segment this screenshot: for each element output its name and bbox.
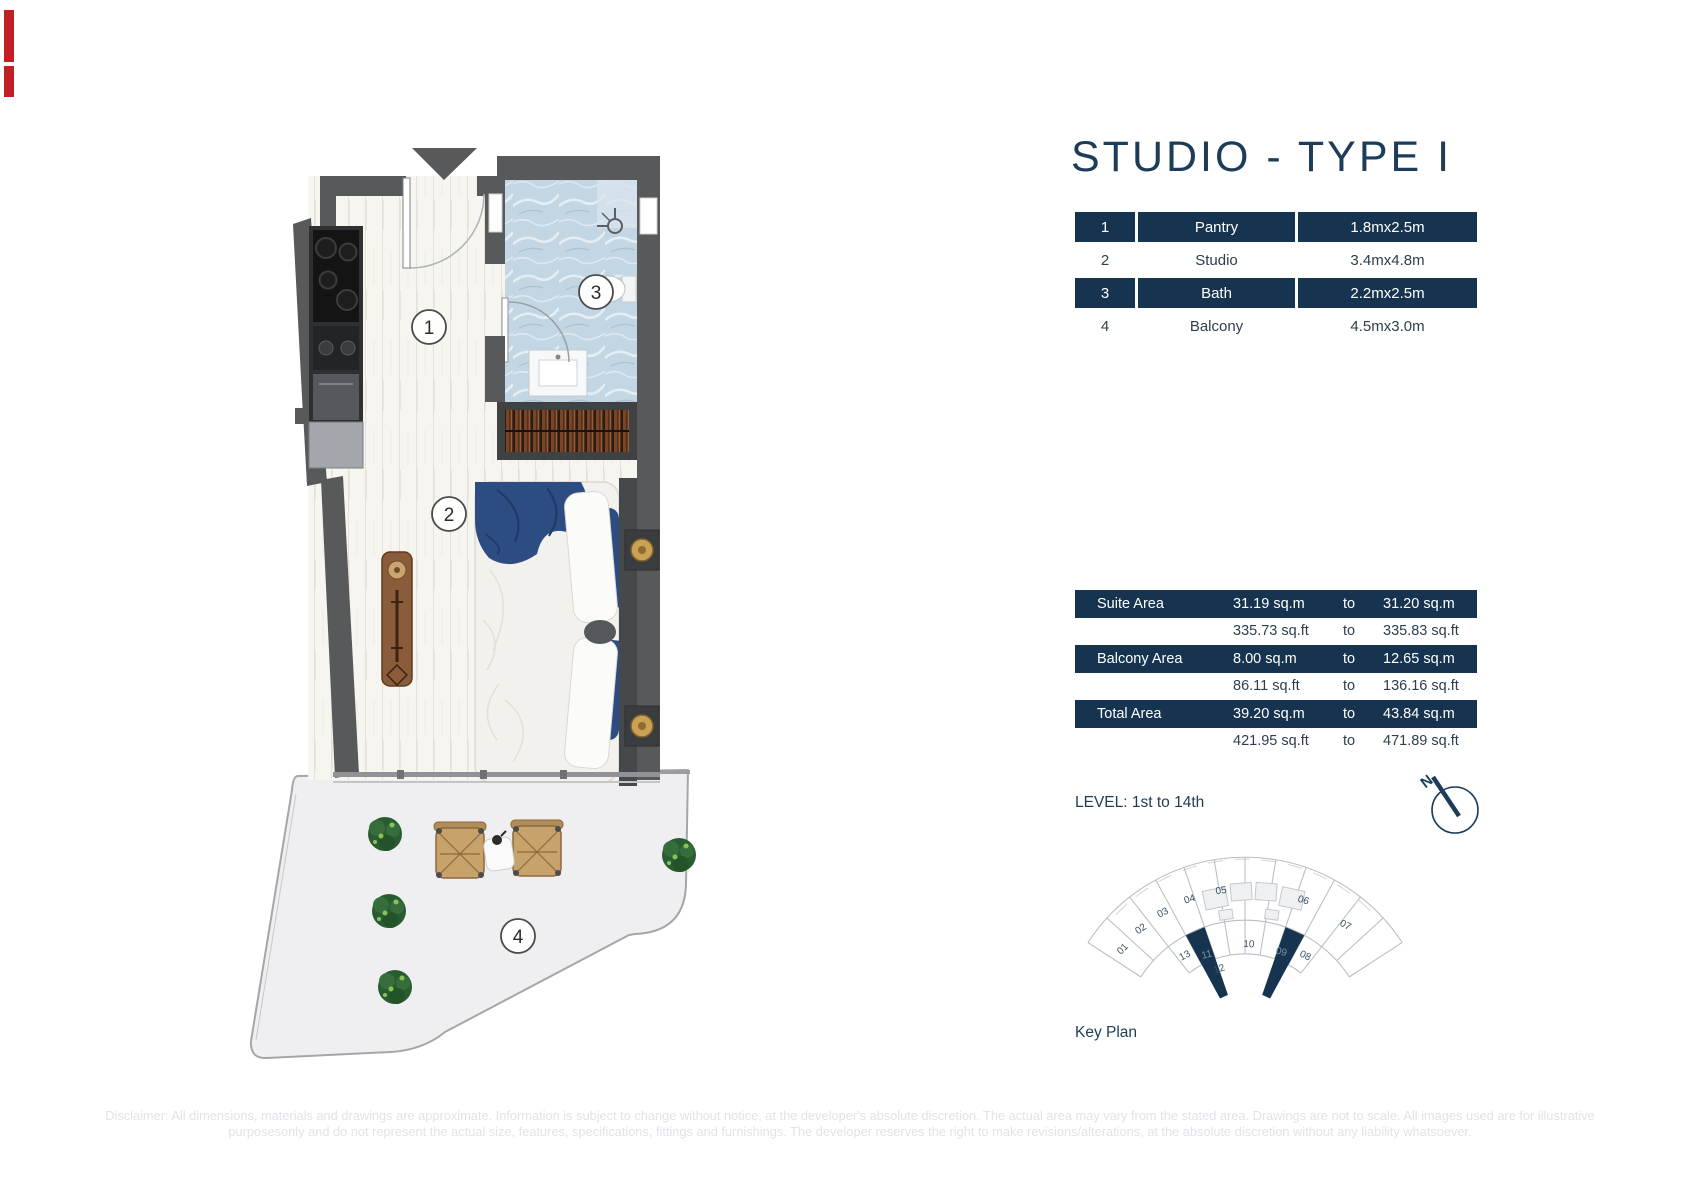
svg-text:01: 01	[1115, 941, 1131, 957]
area-value-max: 136.16 sq.ft	[1369, 678, 1477, 694]
area-summary-table: Suite Area 31.19 sq.m to 31.20 sq.m 335.…	[1075, 590, 1477, 755]
bathroom	[502, 176, 637, 402]
page-title: STUDIO - TYPE I	[1071, 133, 1452, 182]
wicker-chair	[434, 822, 486, 878]
svg-text:N: N	[1417, 772, 1436, 792]
red-edge-marker	[4, 10, 14, 62]
room-label-bath: 3	[579, 275, 613, 309]
room-label-studio: 2	[432, 497, 466, 531]
area-value-min: 39.20 sq.m	[1233, 706, 1329, 722]
window-slot	[640, 198, 657, 234]
area-value-min: 86.11 sq.ft	[1233, 678, 1329, 694]
table-row: Suite Area 31.19 sq.m to 31.20 sq.m	[1075, 590, 1477, 618]
table-row: Balcony Area 8.00 sq.m to 12.65 sq.m	[1075, 645, 1477, 673]
bed	[475, 478, 637, 786]
area-value-min: 421.95 sq.ft	[1233, 733, 1329, 749]
table-row: Total Area 39.20 sq.m to 43.84 sq.m	[1075, 700, 1477, 728]
table-row: 86.11 sq.ft to 136.16 sq.ft	[1075, 673, 1477, 701]
svg-text:03: 03	[1156, 906, 1171, 921]
area-label: Total Area	[1075, 706, 1233, 722]
nightstand	[625, 530, 659, 570]
wicker-chair	[511, 820, 563, 876]
svg-text:05: 05	[1215, 885, 1228, 898]
area-value-min: 335.73 sq.ft	[1233, 623, 1329, 639]
area-value-max: 12.65 sq.m	[1369, 651, 1477, 667]
disclaimer: Disclaimer: All dimensions, materials an…	[0, 1108, 1700, 1139]
entry-arrow-icon	[412, 148, 477, 180]
disclaimer-line-1: Disclaimer: All dimensions, materials an…	[0, 1108, 1700, 1124]
room-name: Studio	[1138, 245, 1295, 275]
level-label: LEVEL: 1st to 14th	[1075, 794, 1204, 812]
room-label-balcony: 4	[501, 919, 535, 953]
red-edge-marker	[4, 66, 14, 97]
nightstand	[625, 706, 659, 746]
room-name: Balcony	[1138, 311, 1295, 341]
room-dims: 3.4mx4.8m	[1298, 245, 1477, 275]
gray-pillow	[584, 620, 616, 644]
table-row: 335.73 sq.ft to 335.83 sq.ft	[1075, 618, 1477, 646]
svg-text:10: 10	[1243, 939, 1255, 950]
svg-text:1: 1	[424, 318, 435, 339]
room-dims: 2.2mx2.5m	[1298, 278, 1477, 308]
room-name: Pantry	[1138, 212, 1295, 242]
plant	[372, 894, 406, 928]
area-value-min: 8.00 sq.m	[1233, 651, 1329, 667]
table-row: 2 Studio 3.4mx4.8m	[1075, 245, 1477, 275]
svg-text:12: 12	[1212, 962, 1226, 976]
svg-text:4: 4	[513, 927, 524, 948]
room-number: 3	[1075, 278, 1135, 308]
table-row: 4 Balcony 4.5mx3.0m	[1075, 311, 1477, 341]
plant	[378, 970, 412, 1004]
room-number: 1	[1075, 212, 1135, 242]
area-value-max: 31.20 sq.m	[1369, 596, 1477, 612]
closet	[497, 402, 637, 460]
table-row: 3 Bath 2.2mx2.5m	[1075, 278, 1477, 308]
room-dims: 4.5mx3.0m	[1298, 311, 1477, 341]
svg-text:02: 02	[1133, 921, 1149, 937]
wooden-bench	[382, 552, 412, 686]
area-value-min: 31.19 sq.m	[1233, 596, 1329, 612]
north-compass-icon: N	[1415, 762, 1495, 846]
range-separator: to	[1329, 706, 1369, 722]
room-name: Bath	[1138, 278, 1295, 308]
range-separator: to	[1329, 623, 1369, 639]
room-label-pantry: 1	[412, 310, 446, 344]
plant	[368, 817, 402, 851]
key-plan-caption: Key Plan	[1075, 1024, 1137, 1042]
area-label: Balcony Area	[1075, 651, 1233, 667]
disclaimer-line-2: purposesonly and do not represent the ac…	[0, 1124, 1700, 1140]
key-plan: 01 02 03 04 05 06 07 08 09 10 11 12 13	[1058, 843, 1413, 1015]
table-row: 421.95 sq.ft to 471.89 sq.ft	[1075, 728, 1477, 756]
range-separator: to	[1329, 596, 1369, 612]
area-value-max: 43.84 sq.m	[1369, 706, 1477, 722]
room-dimensions-table: 1 Pantry 1.8mx2.5m 2 Studio 3.4mx4.8m 3 …	[1075, 212, 1477, 344]
range-separator: to	[1329, 678, 1369, 694]
room-number: 2	[1075, 245, 1135, 275]
balcony-floor	[251, 770, 688, 1058]
range-separator: to	[1329, 651, 1369, 667]
sink-vanity	[529, 350, 587, 396]
room-number: 4	[1075, 311, 1135, 341]
range-separator: to	[1329, 733, 1369, 749]
room-dims: 1.8mx2.5m	[1298, 212, 1477, 242]
table-row: 1 Pantry 1.8mx2.5m	[1075, 212, 1477, 242]
window-slot	[489, 194, 502, 232]
svg-text:3: 3	[591, 283, 602, 304]
svg-text:04: 04	[1183, 893, 1197, 907]
area-value-max: 471.89 sq.ft	[1369, 733, 1477, 749]
svg-text:2: 2	[444, 505, 455, 526]
area-label: Suite Area	[1075, 596, 1233, 612]
svg-text:07: 07	[1338, 918, 1353, 933]
floor-plan: 1 2 3 4	[145, 140, 705, 1070]
entry-door-leaf	[403, 178, 410, 268]
area-value-max: 335.83 sq.ft	[1369, 623, 1477, 639]
plant	[662, 838, 696, 872]
highlighted-unit-09	[1262, 927, 1304, 998]
pantry-appliances	[309, 226, 363, 468]
